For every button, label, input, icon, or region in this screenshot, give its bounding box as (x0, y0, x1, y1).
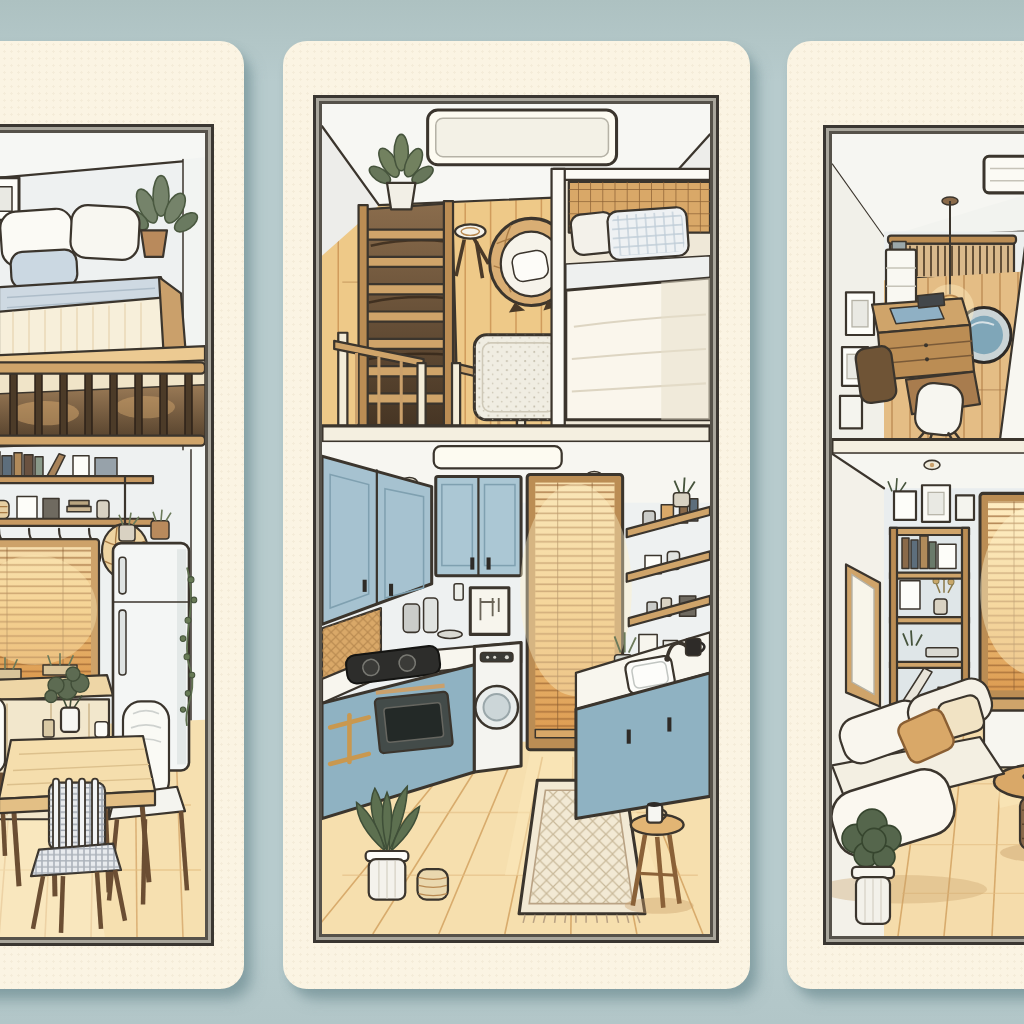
sleeping-loft (322, 104, 710, 426)
ceiling-vent (984, 156, 1024, 193)
panel-middle-card (283, 41, 750, 989)
living-window (976, 493, 1024, 710)
light-switch (454, 584, 463, 600)
skylight (428, 110, 617, 165)
wood-chair (854, 345, 897, 404)
loft-bed-dining-illustration (0, 133, 205, 937)
floor-divider (832, 440, 1024, 454)
loft-kitchen-illustration (322, 104, 710, 934)
woven-basket (417, 869, 447, 899)
bed-nook (552, 169, 710, 426)
panel-right-card (787, 41, 1024, 989)
panel-left-frame (0, 124, 214, 946)
shelf-tower (886, 242, 916, 307)
panel-left-card (0, 41, 244, 989)
stair-ladder (359, 201, 459, 426)
floor-divider (322, 426, 710, 442)
loft-railing (0, 346, 205, 448)
washing-machine (474, 642, 521, 772)
wall-art (846, 564, 880, 706)
panel-right-frame (823, 125, 1024, 945)
living-room (832, 454, 1024, 936)
illustration-canvas (0, 0, 1024, 1024)
white-desk-chair (914, 381, 965, 439)
galley-kitchen (322, 442, 710, 934)
framed-sketch (470, 588, 509, 635)
loft-rug (474, 335, 563, 420)
mezzanine-study (832, 134, 1024, 440)
ceiling-light-panel (434, 446, 562, 468)
study-living-illustration (832, 134, 1024, 936)
panel-middle-frame (313, 95, 719, 943)
